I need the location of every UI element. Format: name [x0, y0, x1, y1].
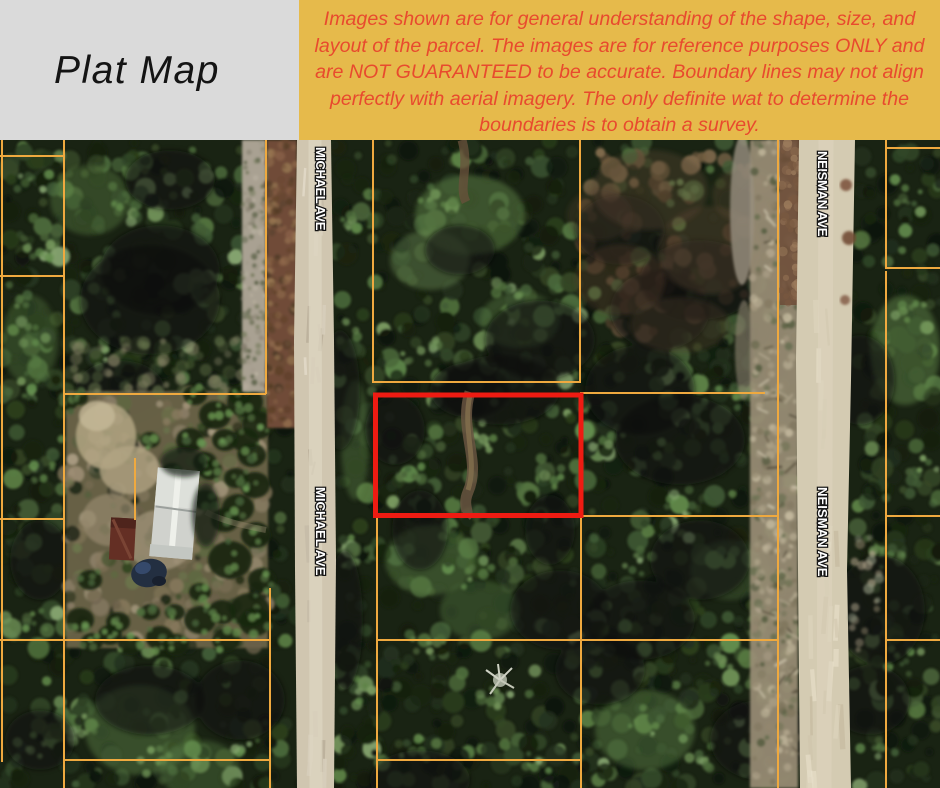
- svg-text:MICHAEL AVE: MICHAEL AVE: [313, 487, 328, 576]
- svg-text:NEISMAN AVE: NEISMAN AVE: [815, 151, 830, 237]
- svg-text:MICHAEL AVE: MICHAEL AVE: [313, 147, 328, 231]
- svg-text:NEISMAN AVE: NEISMAN AVE: [815, 487, 830, 577]
